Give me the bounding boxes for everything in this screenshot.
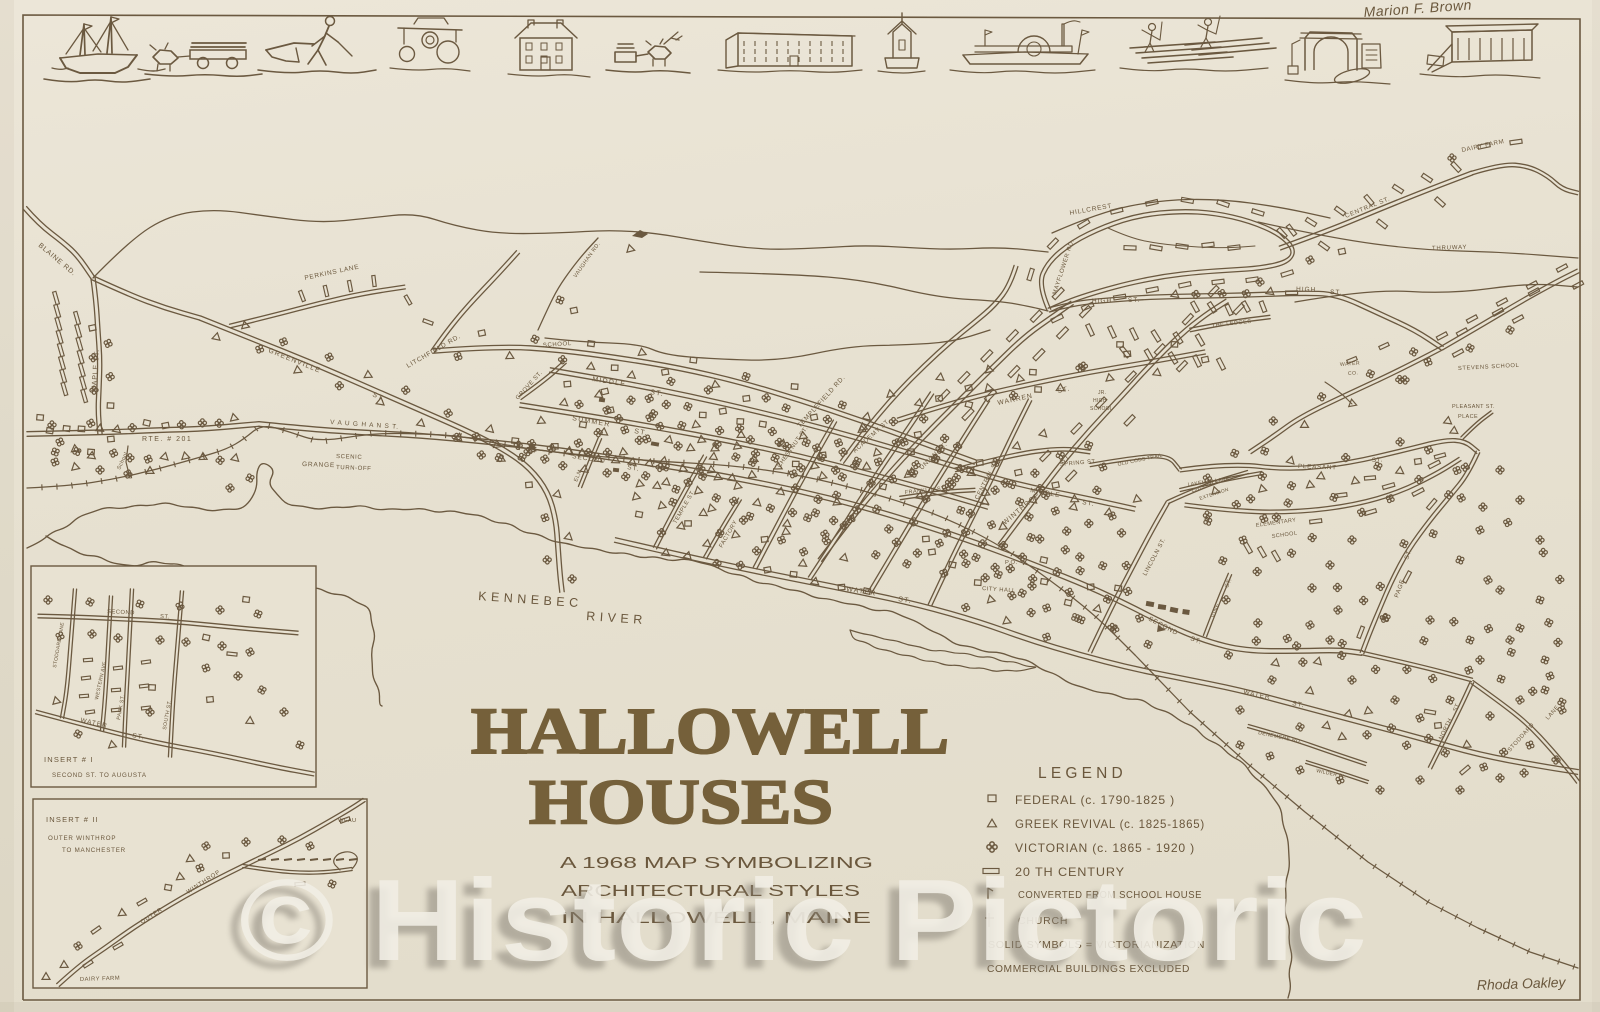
svg-text:HALLOWELL: HALLOWELL <box>471 695 949 768</box>
svg-text:JR.: JR. <box>1098 390 1106 396</box>
svg-text:THRUWAY: THRUWAY <box>1432 245 1467 252</box>
svg-text:VICTORIAN (c. 1865 - 1920 ): VICTORIAN (c. 1865 - 1920 ) <box>1015 841 1195 855</box>
svg-text:TO MANCHESTER: TO MANCHESTER <box>62 847 126 854</box>
svg-text:CO.: CO. <box>1348 370 1359 377</box>
svg-text:FEDERAL (c. 1790-1825 ): FEDERAL (c. 1790-1825 ) <box>1015 793 1175 807</box>
svg-text:PLACE: PLACE <box>1458 414 1478 420</box>
svg-text:LEGEND: LEGEND <box>1038 765 1127 782</box>
svg-text:PLEASANT ST.: PLEASANT ST. <box>1452 404 1495 410</box>
svg-text:ST.: ST. <box>160 614 170 621</box>
svg-text:OUTER WINTHROP: OUTER WINTHROP <box>48 835 116 842</box>
svg-text:INSERT # I: INSERT # I <box>44 755 94 764</box>
svg-text:Rhoda Oakley: Rhoda Oakley <box>1477 974 1567 993</box>
svg-text:PLEASANT: PLEASANT <box>1298 463 1337 471</box>
svg-text:INSERT # II: INSERT # II <box>46 815 99 824</box>
svg-text:WFAU: WFAU <box>338 818 357 824</box>
svg-text:HIGH: HIGH <box>1092 297 1112 305</box>
svg-text:HOUSES: HOUSES <box>529 766 833 837</box>
svg-text:© Historic Pictoric: © Historic Pictoric <box>239 855 1367 985</box>
svg-text:ST.: ST. <box>1330 289 1343 296</box>
svg-text:GRANGE: GRANGE <box>302 461 335 469</box>
svg-text:SCHOOL: SCHOOL <box>1090 406 1113 412</box>
svg-text:SCENIC: SCENIC <box>336 454 363 461</box>
svg-text:RTE. # 201: RTE. # 201 <box>142 436 192 443</box>
svg-text:SECOND ST. TO AUGUSTA: SECOND ST. TO AUGUSTA <box>52 772 147 779</box>
svg-text:ST.: ST. <box>1128 297 1141 304</box>
svg-text:GREEK REVIVAL (c. 1825-1865): GREEK REVIVAL (c. 1825-1865) <box>1015 817 1205 831</box>
svg-text:TURN-OFF: TURN-OFF <box>336 465 372 472</box>
svg-text:HIGH: HIGH <box>1296 286 1316 294</box>
svg-text:HIGH: HIGH <box>1093 398 1107 404</box>
